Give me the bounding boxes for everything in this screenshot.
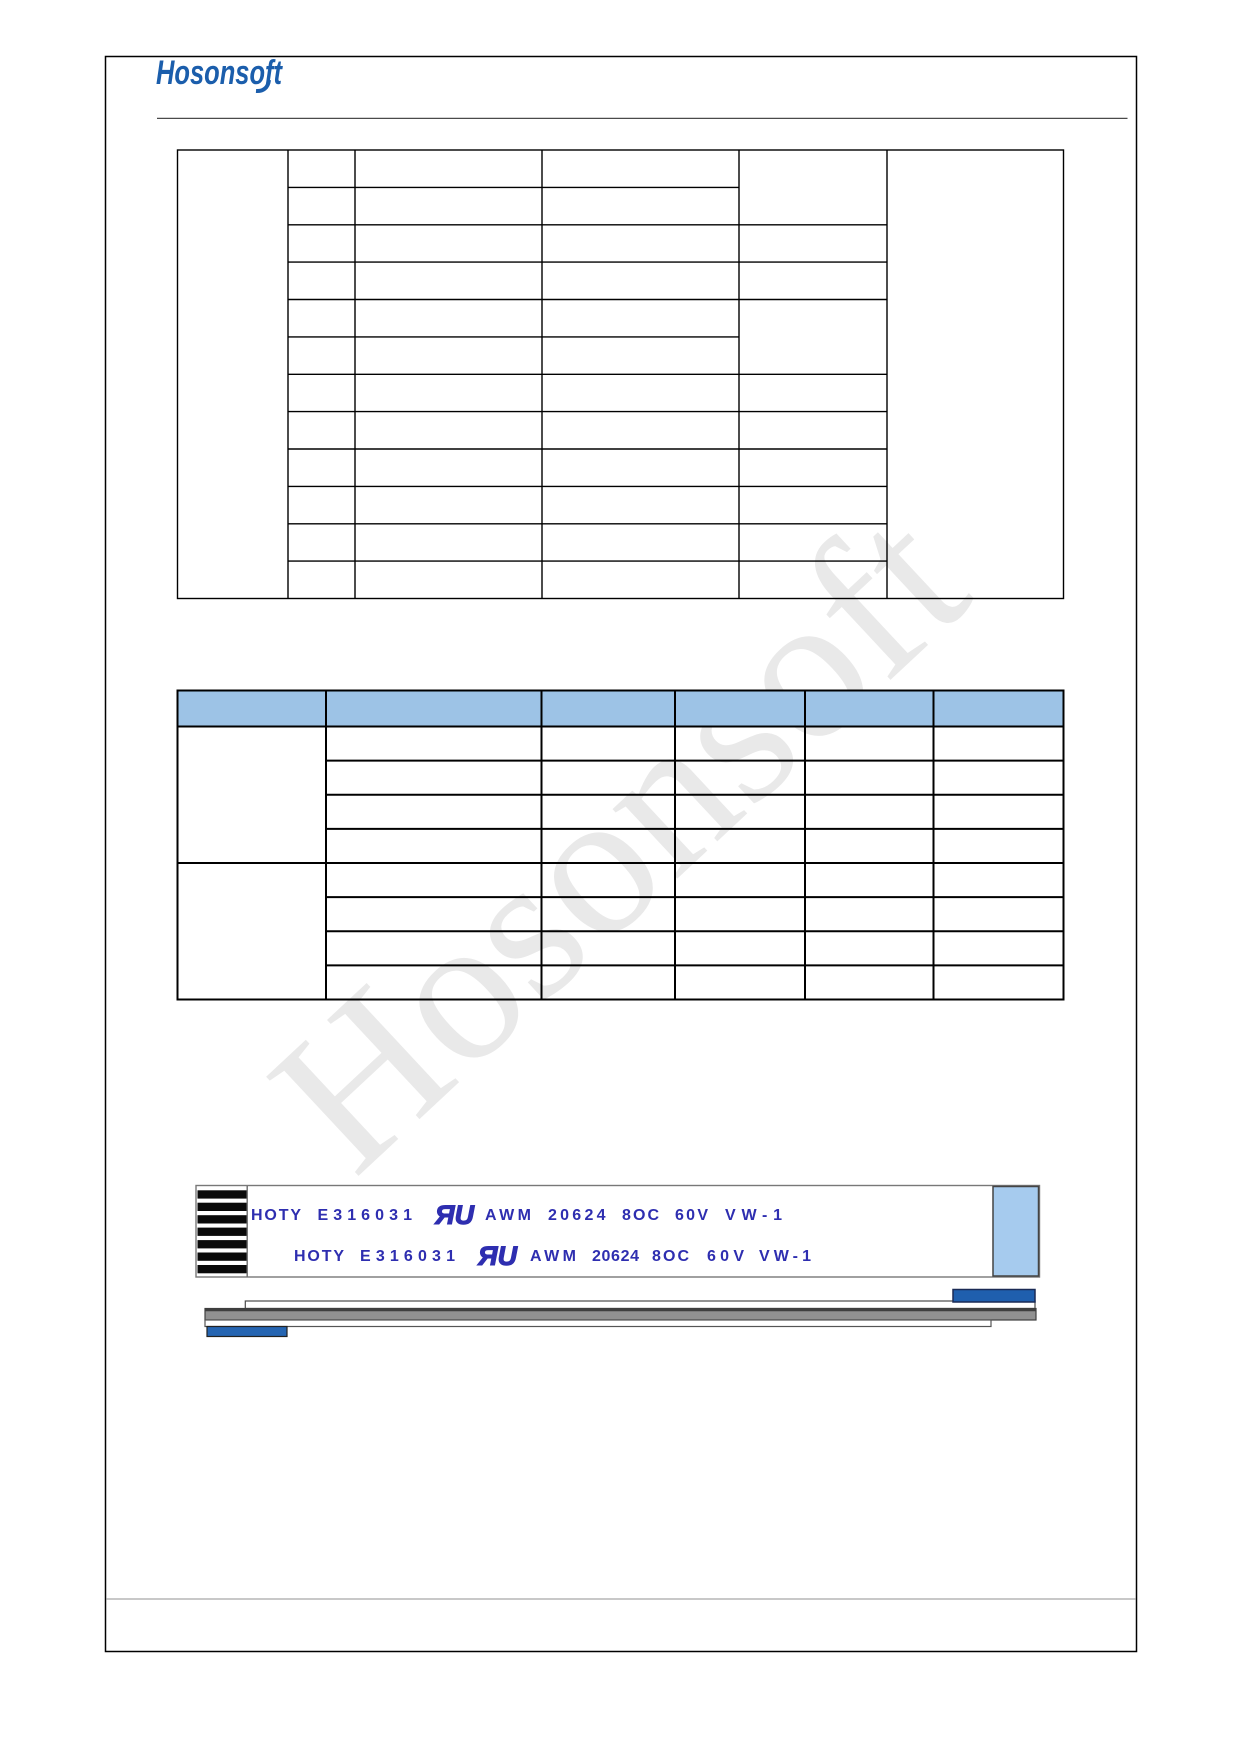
svg-text:8OC: 8OC <box>622 1207 659 1224</box>
svg-text:Hosonsoft: Hosonsoft <box>229 465 1008 1213</box>
svg-text:20624: 20624 <box>548 1207 606 1224</box>
svg-text:VW-1: VW-1 <box>725 1207 782 1224</box>
svg-text:8OC: 8OC <box>652 1248 689 1265</box>
svg-text:ЯU: ЯU <box>434 1200 475 1230</box>
svg-text:ЯU: ЯU <box>477 1241 518 1271</box>
svg-text:AWM: AWM <box>530 1248 576 1265</box>
svg-text:Hosonsoft: Hosonsoft <box>156 54 283 92</box>
svg-text:20624: 20624 <box>592 1248 639 1265</box>
svg-text:HOTY: HOTY <box>294 1248 344 1265</box>
svg-text:AWM: AWM <box>485 1207 531 1224</box>
svg-text:VW-1: VW-1 <box>759 1248 811 1265</box>
svg-text:60V: 60V <box>675 1207 708 1224</box>
svg-text:HOTY: HOTY <box>251 1207 301 1224</box>
svg-text:60V: 60V <box>707 1248 744 1265</box>
